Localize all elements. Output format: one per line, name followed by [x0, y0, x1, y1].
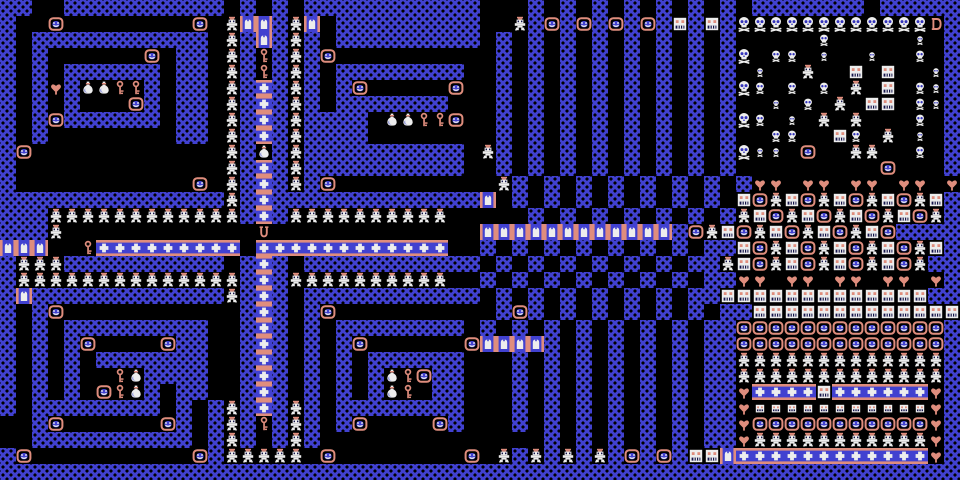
tile-ghost: [928, 208, 944, 224]
ghost-icon: [288, 32, 304, 48]
tile-smiley-spawner: [160, 336, 176, 352]
tile-spawner-face: [800, 288, 816, 304]
smiley-icon: [816, 208, 832, 224]
tile-wall: [304, 144, 320, 160]
tile-floor: [80, 48, 96, 64]
tile-wall: [48, 288, 64, 304]
tile-floor: [656, 336, 672, 352]
tile-wall: [272, 400, 288, 416]
tile-wall: [32, 368, 48, 384]
door-v-icon: [624, 224, 640, 240]
tile-heart: [736, 272, 752, 288]
tile-floor: [576, 304, 592, 320]
tile-door-horizontal: [256, 192, 272, 208]
tile-wall: [160, 256, 176, 272]
tile-floor: [64, 304, 80, 320]
tile-floor: [464, 48, 480, 64]
ghost-icon: [496, 176, 512, 192]
skull-small-icon: [752, 144, 768, 160]
tile-wall: [720, 368, 736, 384]
smiley-icon: [192, 176, 208, 192]
tile-wall: [672, 400, 688, 416]
tile-floor: [544, 0, 560, 16]
tile-ghost: [848, 432, 864, 448]
tile-spawner-face: [928, 304, 944, 320]
tile-floor: [592, 416, 608, 432]
tile-wall: [944, 80, 960, 96]
ghost-icon: [224, 112, 240, 128]
tile-spawner-face: [736, 192, 752, 208]
tile-ghost: [32, 272, 48, 288]
skull-small-icon: [816, 48, 832, 64]
tile-smiley-spawner: [928, 320, 944, 336]
tile-floor: [336, 448, 352, 464]
tile-ghost: [304, 272, 320, 288]
tile-wall: [112, 192, 128, 208]
tile-floor: [496, 432, 512, 448]
tile-wall: [592, 0, 608, 16]
tile-wall: [688, 208, 704, 224]
tile-ghost: [832, 96, 848, 112]
door-h-icon: [256, 80, 272, 96]
tile-wall: [560, 48, 576, 64]
tile-skull-large: [912, 16, 928, 32]
tile-floor: [624, 432, 640, 448]
face-icon: [880, 240, 896, 256]
tile-door-horizontal: [752, 448, 768, 464]
tile-ghost: [288, 32, 304, 48]
ghost-icon: [832, 96, 848, 112]
tile-floor: [480, 208, 496, 224]
tile-wall: [128, 256, 144, 272]
tile-wall: [320, 288, 336, 304]
tile-floor: [928, 144, 944, 160]
ghost-icon: [848, 432, 864, 448]
tile-ghost: [288, 16, 304, 32]
tile-skull-large: [736, 80, 752, 96]
tile-floor: [752, 32, 768, 48]
tile-ghost: [384, 208, 400, 224]
smiley-icon: [752, 240, 768, 256]
tile-floor: [544, 80, 560, 96]
skull-medium-icon: [784, 128, 800, 144]
tile-wall: [0, 64, 16, 80]
tile-wall: [560, 256, 576, 272]
tile-skull-small: [784, 112, 800, 128]
tile-wall: [912, 464, 928, 480]
tile-spawner-face-small: [752, 400, 768, 416]
tile-smiley-spawner: [352, 80, 368, 96]
tile-spawner-face: [848, 64, 864, 80]
smiley-icon: [848, 416, 864, 432]
tile-floor: [432, 48, 448, 64]
tile-wall: [272, 384, 288, 400]
tile-floor: [96, 368, 112, 384]
ghost-icon: [336, 208, 352, 224]
door-h-icon: [800, 448, 816, 464]
tile-wall: [176, 400, 192, 416]
skull-large-icon: [816, 16, 832, 32]
tile-wall: [688, 32, 704, 48]
tile-wall: [272, 320, 288, 336]
tile-wall: [688, 80, 704, 96]
door-v-icon: [480, 192, 496, 208]
face-icon: [704, 448, 720, 464]
tile-wall: [720, 208, 736, 224]
tile-floor: [576, 80, 592, 96]
tile-floor: [192, 224, 208, 240]
tile-floor: [560, 416, 576, 432]
tile-door-horizontal: [912, 448, 928, 464]
tile-floor: [464, 144, 480, 160]
door-h-icon: [160, 240, 176, 256]
ghost-icon: [496, 448, 512, 464]
tile-wall: [192, 192, 208, 208]
tile-wall: [272, 304, 288, 320]
tile-floor: [80, 176, 96, 192]
tile-ghost: [48, 208, 64, 224]
game-board[interactable]: [0, 0, 960, 480]
tile-wall: [144, 352, 160, 368]
tile-floor: [848, 96, 864, 112]
tile-wall: [528, 256, 544, 272]
heart-icon: [832, 272, 848, 288]
tile-smiley-spawner: [768, 416, 784, 432]
tile-floor: [608, 32, 624, 48]
ghost-icon: [864, 144, 880, 160]
tile-wall: [416, 352, 432, 368]
tile-wall: [416, 320, 432, 336]
tile-wall: [432, 384, 448, 400]
tile-wall: [192, 384, 208, 400]
tile-wall: [672, 336, 688, 352]
tile-door-horizontal: [800, 448, 816, 464]
tile-money-bag: [128, 384, 144, 400]
door-h-icon: [832, 448, 848, 464]
tile-wall: [192, 80, 208, 96]
door-h-icon: [848, 448, 864, 464]
tile-floor: [480, 32, 496, 48]
tile-smiley-spawner: [320, 176, 336, 192]
tile-wall: [240, 304, 256, 320]
tile-smiley-spawner: [784, 336, 800, 352]
tile-wall: [944, 368, 960, 384]
tile-ghost: [224, 96, 240, 112]
tile-floor: [128, 128, 144, 144]
tile-wall: [512, 192, 528, 208]
tile-money-bag: [128, 368, 144, 384]
tile-wall: [528, 160, 544, 176]
tile-smiley-spawner: [800, 256, 816, 272]
tile-wall: [528, 144, 544, 160]
tile-wall: [352, 0, 368, 16]
tile-wall: [672, 320, 688, 336]
tile-exit-door: [928, 16, 944, 32]
tile-wall: [416, 32, 432, 48]
tile-wall: [336, 352, 352, 368]
tile-wall: [96, 0, 112, 16]
heart-icon: [928, 416, 944, 432]
tile-ghost: [224, 448, 240, 464]
tile-floor: [224, 336, 240, 352]
tile-skull-medium: [912, 80, 928, 96]
tile-wall: [0, 320, 16, 336]
tile-wall: [704, 400, 720, 416]
tile-wall: [32, 464, 48, 480]
tile-wall: [64, 256, 80, 272]
tile-ghost: [224, 80, 240, 96]
ghost-icon: [192, 272, 208, 288]
face-icon: [832, 304, 848, 320]
tile-wall: [432, 192, 448, 208]
tile-ghost: [912, 192, 928, 208]
ghost-icon: [16, 256, 32, 272]
tile-smiley-spawner: [832, 320, 848, 336]
tile-wall: [240, 144, 256, 160]
tile-ghost: [112, 272, 128, 288]
tile-ghost: [400, 272, 416, 288]
skull-small-icon: [928, 96, 944, 112]
smiley-icon: [896, 416, 912, 432]
tile-floor: [512, 160, 528, 176]
ghost-icon: [704, 224, 720, 240]
tile-door-horizontal: [256, 400, 272, 416]
smiley-icon: [880, 416, 896, 432]
tile-wall: [896, 224, 912, 240]
tile-floor: [192, 432, 208, 448]
tile-wall: [352, 64, 368, 80]
tile-wall: [0, 144, 16, 160]
tile-floor: [48, 368, 64, 384]
tile-wall: [496, 288, 512, 304]
tile-wall: [112, 400, 128, 416]
tile-wall: [320, 464, 336, 480]
tile-ghost: [800, 432, 816, 448]
door-h-icon: [752, 448, 768, 464]
tile-floor: [384, 336, 400, 352]
tile-floor: [208, 224, 224, 240]
tile-wall: [272, 256, 288, 272]
face-icon: [880, 80, 896, 96]
tile-floor: [768, 272, 784, 288]
tile-smiley-spawner: [864, 320, 880, 336]
tile-wall: [640, 448, 656, 464]
tile-wall: [176, 96, 192, 112]
tile-door-horizontal: [256, 208, 272, 224]
tile-floor: [208, 144, 224, 160]
tile-wall: [560, 304, 576, 320]
tile-floor: [448, 448, 464, 464]
tile-floor: [528, 432, 544, 448]
door-h-icon: [96, 240, 112, 256]
tile-wall: [368, 320, 384, 336]
tile-ghost: [288, 208, 304, 224]
tile-wall: [400, 192, 416, 208]
tile-floor: [288, 304, 304, 320]
tile-wall: [384, 256, 400, 272]
tile-wall: [688, 288, 704, 304]
tile-wall: [64, 96, 80, 112]
tile-wall: [544, 352, 560, 368]
ghost-icon: [96, 208, 112, 224]
tile-wall: [720, 272, 736, 288]
ghost-icon: [224, 176, 240, 192]
tile-wall: [544, 368, 560, 384]
tile-door-horizontal: [256, 352, 272, 368]
heart-icon: [928, 272, 944, 288]
tile-floor: [704, 160, 720, 176]
tile-floor: [512, 80, 528, 96]
smiley-icon: [896, 320, 912, 336]
tile-wall: [192, 112, 208, 128]
face-icon: [816, 384, 832, 400]
tile-wall: [416, 192, 432, 208]
tile-wall: [32, 48, 48, 64]
tile-skull-large: [752, 16, 768, 32]
tile-wall: [64, 288, 80, 304]
tile-wall: [800, 464, 816, 480]
tile-floor: [848, 48, 864, 64]
smiley-icon: [752, 336, 768, 352]
tile-floor: [480, 160, 496, 176]
tile-floor: [48, 160, 64, 176]
door-h-icon: [256, 304, 272, 320]
face-small-icon: [800, 400, 816, 416]
tile-wall: [592, 32, 608, 48]
tile-ghost: [208, 208, 224, 224]
tile-floor: [832, 144, 848, 160]
skull-medium-icon: [816, 80, 832, 96]
tile-door-vertical: [720, 448, 736, 464]
door-h-icon: [816, 448, 832, 464]
tile-wall: [336, 112, 352, 128]
tile-wall: [144, 288, 160, 304]
tile-floor: [96, 224, 112, 240]
tile-floor: [640, 144, 656, 160]
tile-wall: [528, 16, 544, 32]
tile-ghost: [48, 272, 64, 288]
tile-wall: [576, 176, 592, 192]
tile-floor: [608, 96, 624, 112]
tile-floor: [496, 352, 512, 368]
tile-ghost: [48, 256, 64, 272]
tile-floor: [144, 224, 160, 240]
tile-wall: [656, 16, 672, 32]
tile-floor: [480, 368, 496, 384]
tile-spawner-face: [848, 208, 864, 224]
tile-wall: [384, 464, 400, 480]
door-h-icon: [768, 384, 784, 400]
tile-floor: [896, 64, 912, 80]
tile-smiley-spawner: [784, 416, 800, 432]
ghost-icon: [912, 256, 928, 272]
face-icon: [784, 256, 800, 272]
door-v-icon: [544, 224, 560, 240]
smiley-icon: [768, 208, 784, 224]
tile-floor: [224, 384, 240, 400]
tile-wall: [944, 352, 960, 368]
tile-wall: [528, 80, 544, 96]
door-h-icon: [912, 448, 928, 464]
tile-floor: [368, 432, 384, 448]
tile-wall: [656, 32, 672, 48]
tile-wall: [592, 16, 608, 32]
tile-floor: [368, 176, 384, 192]
door-v-icon: [16, 240, 32, 256]
tile-wall: [688, 96, 704, 112]
face-icon: [816, 304, 832, 320]
heart-icon: [928, 384, 944, 400]
skull-small-icon: [768, 144, 784, 160]
tile-wall: [80, 0, 96, 16]
tile-floor: [640, 160, 656, 176]
tile-floor: [544, 112, 560, 128]
tile-wall: [672, 192, 688, 208]
tile-spawner-face: [800, 208, 816, 224]
tile-floor: [864, 0, 880, 16]
tile-floor: [816, 144, 832, 160]
door-v-icon: [640, 224, 656, 240]
smiley-icon: [784, 320, 800, 336]
tile-wall: [144, 256, 160, 272]
ghost-icon: [768, 192, 784, 208]
tile-ghost: [768, 240, 784, 256]
key-icon: [80, 240, 96, 256]
ghost-icon: [800, 368, 816, 384]
tile-floor: [112, 96, 128, 112]
face-icon: [704, 16, 720, 32]
tile-wall: [448, 64, 464, 80]
tile-floor: [208, 96, 224, 112]
door-v-icon: [480, 336, 496, 352]
tile-floor: [48, 144, 64, 160]
ghost-icon: [224, 432, 240, 448]
tile-floor: [400, 432, 416, 448]
tile-wall: [464, 16, 480, 32]
tile-floor: [352, 384, 368, 400]
tile-floor: [144, 448, 160, 464]
tile-wall: [656, 144, 672, 160]
skull-large-icon: [784, 16, 800, 32]
skull-medium-icon: [848, 128, 864, 144]
tile-wall: [736, 176, 752, 192]
tile-floor: [592, 352, 608, 368]
door-h-icon: [272, 240, 288, 256]
tile-ghost: [256, 448, 272, 464]
tile-wall: [656, 96, 672, 112]
tile-floor: [544, 64, 560, 80]
tile-ghost: [752, 224, 768, 240]
tile-wall: [192, 464, 208, 480]
tile-wall: [0, 224, 16, 240]
tile-floor: [16, 368, 32, 384]
tile-spawner-face-small: [848, 400, 864, 416]
tile-floor: [160, 448, 176, 464]
tile-wall: [944, 464, 960, 480]
tile-wall: [240, 400, 256, 416]
tile-ghost: [704, 224, 720, 240]
tile-wall: [832, 464, 848, 480]
tile-floor: [496, 208, 512, 224]
tile-ghost: [336, 208, 352, 224]
tile-spawner-face: [928, 192, 944, 208]
tile-smiley-spawner: [896, 320, 912, 336]
ghost-icon: [304, 272, 320, 288]
tile-key: [256, 416, 272, 432]
tile-wall: [528, 64, 544, 80]
tile-ghost: [208, 272, 224, 288]
tile-wall: [192, 64, 208, 80]
